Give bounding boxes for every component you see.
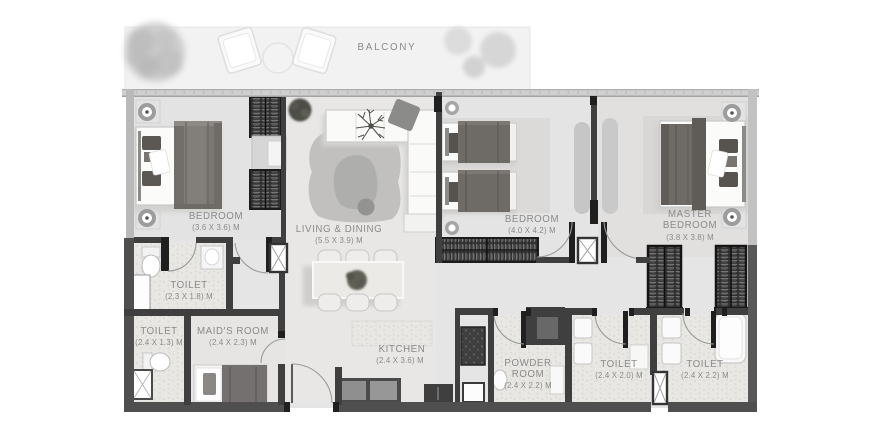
- svg-text:(2.4 X 2.2) M: (2.4 X 2.2) M: [504, 381, 552, 390]
- svg-text:MASTER: MASTER: [668, 209, 712, 220]
- svg-text:TOILET: TOILET: [140, 326, 177, 337]
- svg-text:BEDROOM: BEDROOM: [505, 214, 559, 225]
- svg-text:(2.4 X 1.3) M: (2.4 X 1.3) M: [135, 338, 183, 347]
- svg-text:ROOM: ROOM: [512, 369, 545, 380]
- svg-text:(2.4 X 2.0) M: (2.4 X 2.0) M: [595, 371, 643, 380]
- svg-text:(5.5 X 3.9) M: (5.5 X 3.9) M: [315, 236, 363, 245]
- svg-text:TOILET: TOILET: [600, 359, 637, 370]
- svg-text:BEDROOM: BEDROOM: [189, 211, 243, 222]
- svg-text:TOILET: TOILET: [686, 359, 723, 370]
- svg-text:KITCHEN: KITCHEN: [379, 344, 426, 355]
- svg-text:(4.0 X 4.2) M: (4.0 X 4.2) M: [508, 226, 556, 235]
- svg-text:(2.4 X 2.2) M: (2.4 X 2.2) M: [681, 371, 729, 380]
- svg-text:TOILET: TOILET: [170, 280, 207, 291]
- svg-text:(2.3 X 1.8) M: (2.3 X 1.8) M: [165, 292, 213, 301]
- svg-text:(3.6 X 3.6) M: (3.6 X 3.6) M: [192, 223, 240, 232]
- svg-text:BEDROOM: BEDROOM: [663, 220, 717, 231]
- svg-text:POWDER: POWDER: [504, 358, 551, 369]
- svg-text:MAID'S ROOM: MAID'S ROOM: [197, 326, 269, 337]
- svg-text:(2.4 X 2.3) M: (2.4 X 2.3) M: [209, 338, 257, 347]
- svg-text:(3.8 X 3.8) M: (3.8 X 3.8) M: [666, 233, 714, 242]
- svg-text:LIVING & DINING: LIVING & DINING: [296, 224, 383, 235]
- svg-text:(2.4 X 3.6) M: (2.4 X 3.6) M: [376, 356, 424, 365]
- svg-text:BALCONY: BALCONY: [358, 42, 417, 53]
